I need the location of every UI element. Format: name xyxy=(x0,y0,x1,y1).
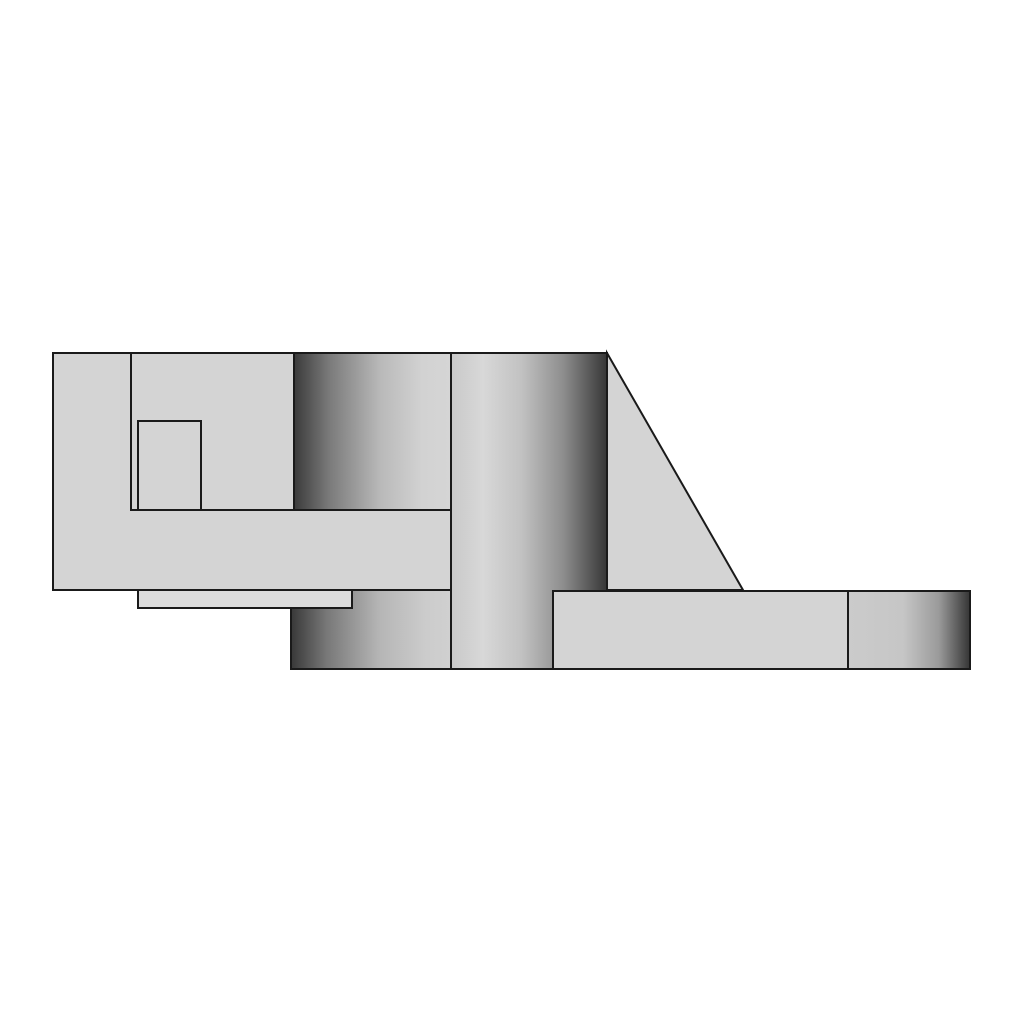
base-plate-face xyxy=(552,590,849,670)
cad-viewport[interactable] xyxy=(0,0,1024,1024)
step-ledge-face xyxy=(137,589,353,609)
pocket-outline xyxy=(137,420,202,511)
base-plate-round-end-face xyxy=(847,590,971,670)
boss-cylinder-face xyxy=(293,352,452,511)
inner-vertical-edge xyxy=(130,352,132,511)
